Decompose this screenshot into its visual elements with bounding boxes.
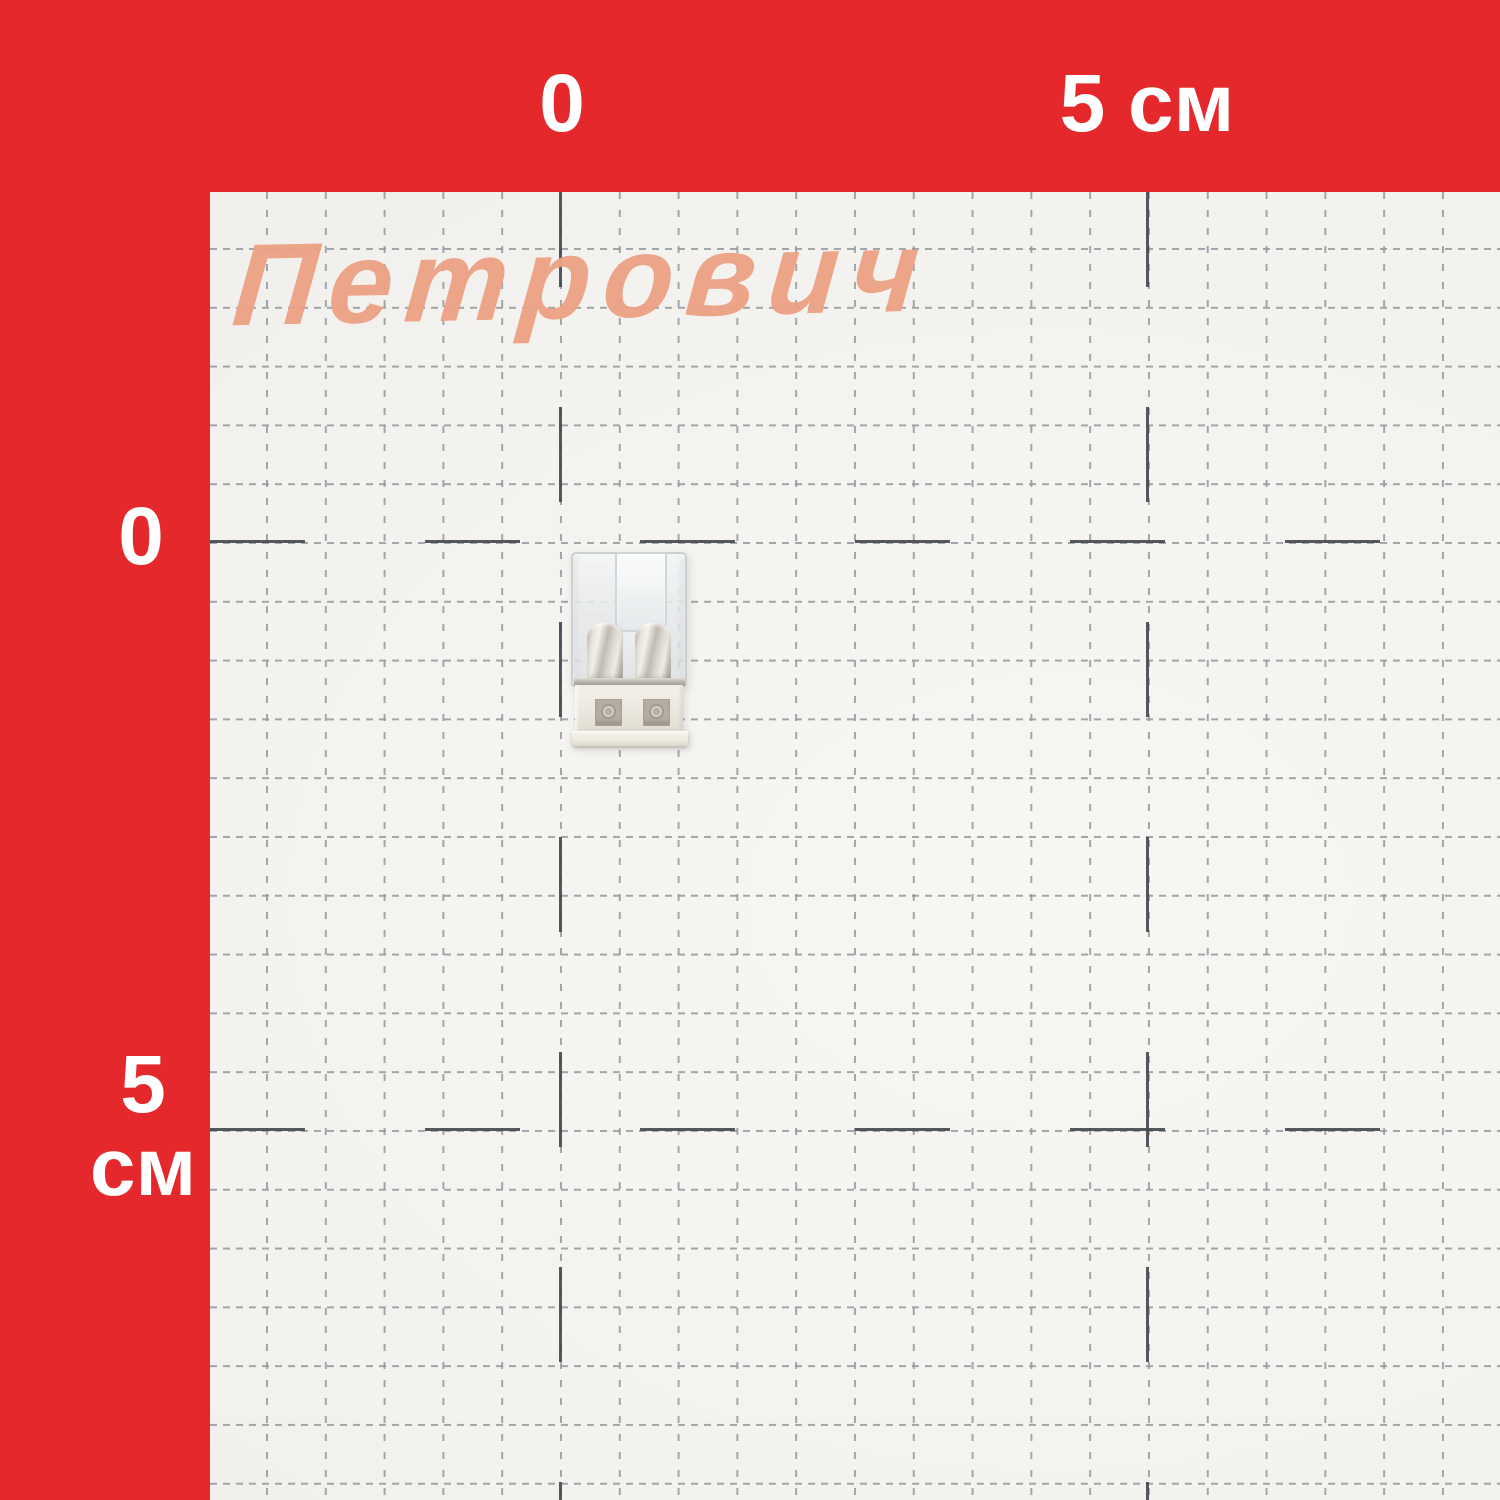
grid-major-vertical-line-0cm: [559, 192, 562, 1500]
connector-contact-left: [595, 699, 622, 726]
connector-contact-right: [643, 699, 670, 726]
connector-metal-clamp-right: [635, 623, 671, 683]
ruler-left-label-cm: см: [90, 1118, 196, 1218]
connector-base-flange: [572, 731, 688, 746]
ruler-left-label-0: 0: [118, 487, 164, 587]
product-photo-stage: Петрович 0 5 см 0 5 см: [0, 0, 1500, 1500]
ruler-top-label-5cm: 5 см: [1060, 54, 1235, 154]
grid-minor-vertical-lines: [210, 192, 1500, 1500]
connector-metal-clamp-left: [587, 623, 623, 683]
grid-major-vertical-line-5cm: [1146, 192, 1149, 1500]
wire-connector: [570, 549, 689, 749]
grid-major-horizontal-line-5cm: [210, 1128, 1500, 1131]
ruler-top-label-0: 0: [539, 54, 585, 154]
ruler-band-top: [0, 0, 1500, 192]
ruler-band-left: [0, 0, 210, 1500]
connector-clear-tab: [615, 552, 667, 632]
petrovich-logo: Петрович: [227, 195, 937, 360]
grid-major-horizontal-line-0cm: [210, 540, 1500, 543]
